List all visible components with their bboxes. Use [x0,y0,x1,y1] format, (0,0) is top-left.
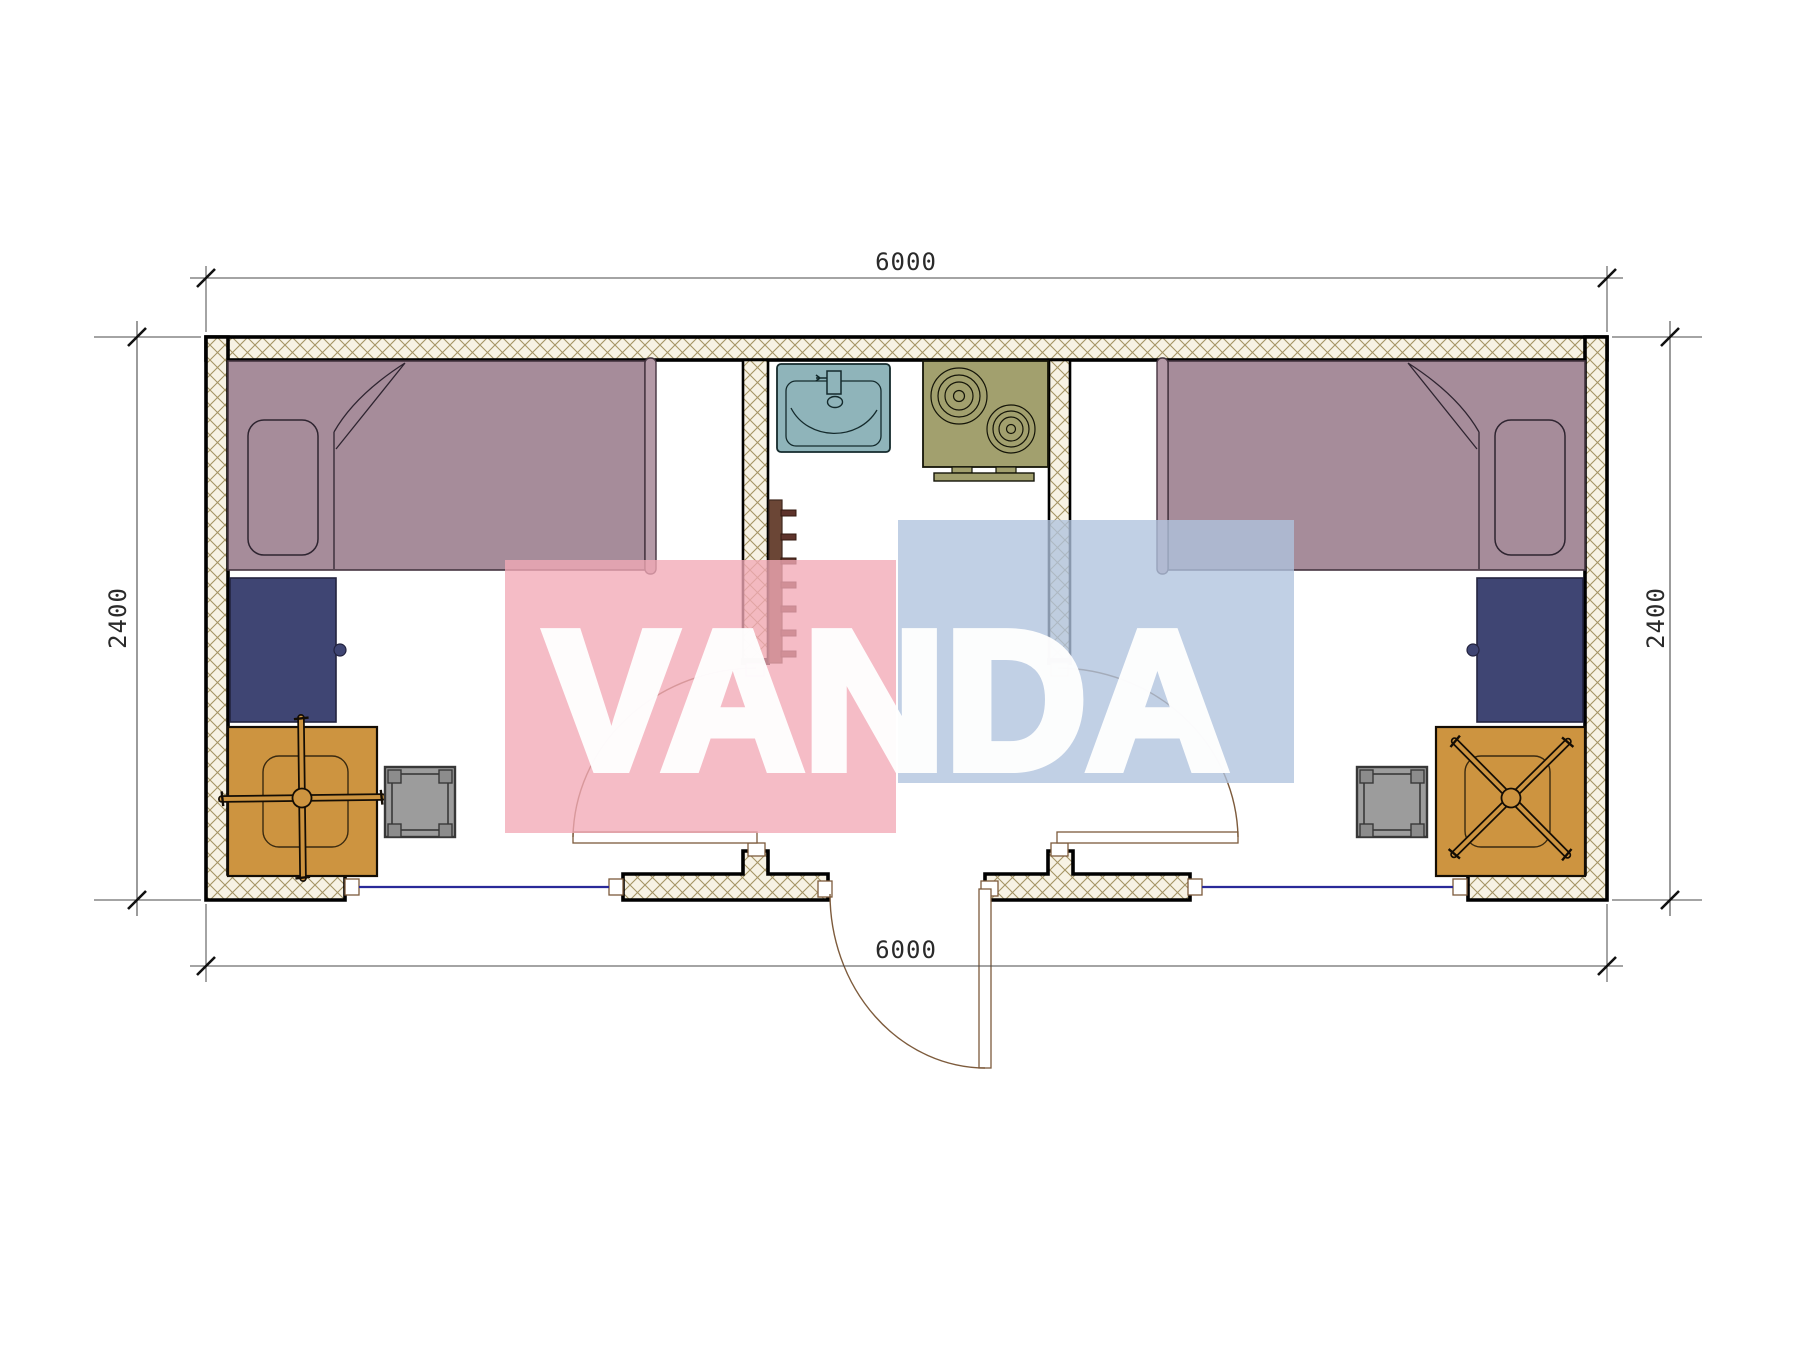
wall-top [206,337,1607,360]
door-entrance-swing-arc [830,894,985,1068]
door-right-hinge [1051,843,1068,856]
bed-right-pillow [1495,420,1565,555]
window-left [345,879,623,895]
wall-bottom-left-tee [623,851,828,900]
stove-shelf [934,473,1034,481]
door-entrance [818,881,998,1068]
desk-left [202,698,402,898]
nightstand-right-knob [1467,644,1479,656]
nightstand-left-knob [334,644,346,656]
dimension-left-label: 2400 [104,587,132,649]
window-left-cap-b [609,879,623,895]
watermark: VANDA [505,520,1294,833]
sink [777,364,890,452]
stove-foot-left [952,467,972,473]
door-right-leaf [1057,832,1238,843]
window-right [1188,879,1467,895]
bed-left-footboard [645,358,656,574]
dimension-bottom: 6000 [190,904,1623,982]
dimension-right: 2400 [1612,321,1702,916]
floor-plan-drawing: 6000 6000 2400 2400 VANDA [0,0,1800,1350]
watermark-text: VANDA [546,591,1228,810]
wall-bottom-right-tee [985,851,1190,900]
bed-left [228,358,656,574]
desk-right [1411,698,1611,898]
nightstand-left-top [230,578,336,722]
stove [923,361,1048,481]
nightstand-right-top [1477,578,1583,722]
bed-left-pillow [248,420,318,555]
nightstand-right [1467,578,1583,722]
faucet-icon [827,371,841,394]
window-left-cap-a [345,879,359,895]
door-entrance-leaf [979,889,991,1068]
dimension-left: 2400 [94,321,201,916]
window-right-cap-b [1453,879,1467,895]
door-left-hinge [748,843,765,856]
dimension-top-label: 6000 [875,248,937,276]
nightstand-left [230,578,346,722]
stool-right [1357,767,1427,837]
window-right-cap-a [1188,879,1202,895]
dimension-top: 6000 [190,248,1623,332]
dimension-right-label: 2400 [1642,587,1670,649]
stove-foot-right [996,467,1016,473]
dimension-bottom-label: 6000 [875,936,937,964]
floor-plan-page: 6000 6000 2400 2400 VANDA [0,0,1800,1350]
stool-left [385,767,455,837]
door-left-leaf [573,832,757,843]
